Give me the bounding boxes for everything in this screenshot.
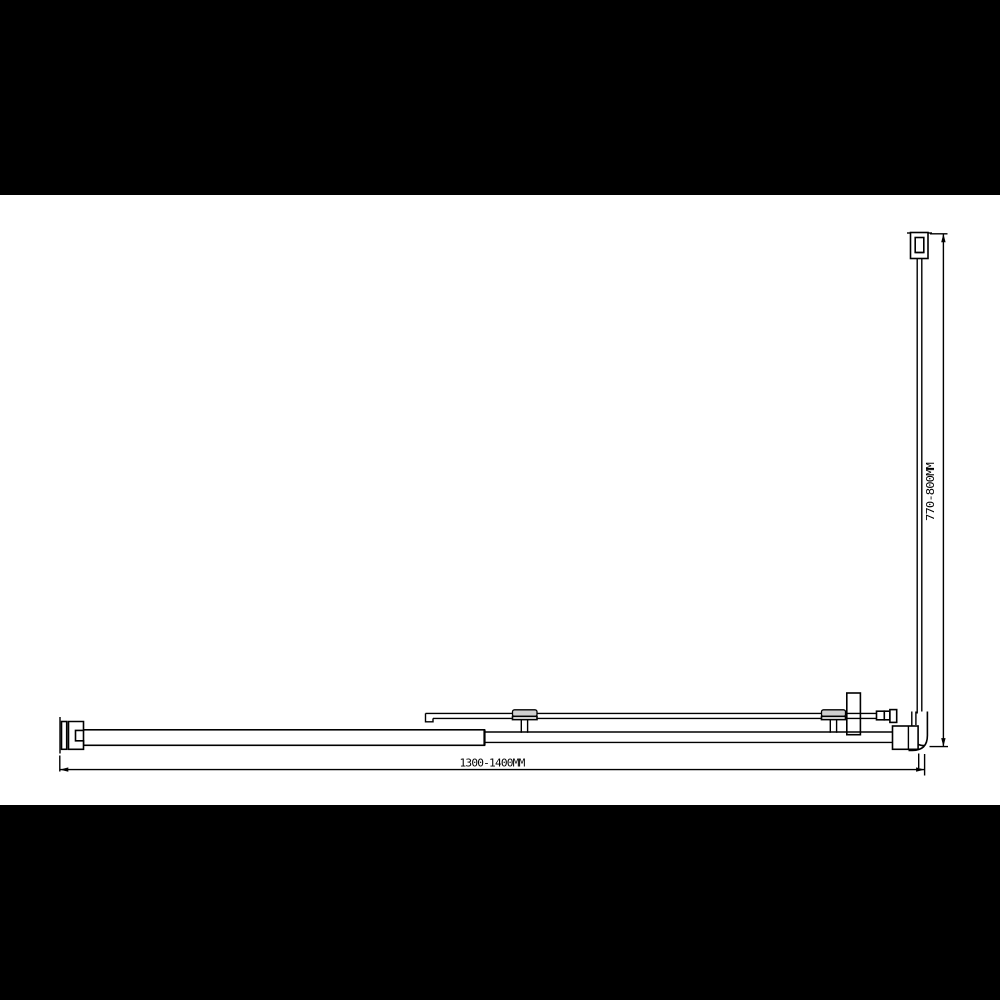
- screenshot-stage: 1300-1400MM 770-800MM: [0, 0, 1000, 1000]
- letterbox-bottom: [0, 805, 1000, 1000]
- letterbox-top: [0, 0, 1000, 195]
- rail-wall-bracket: [877, 710, 897, 723]
- technical-drawing: 1300-1400MM 770-800MM: [0, 0, 1000, 1000]
- width-dimension-label: 1300-1400MM: [460, 757, 526, 770]
- wall-profile-top: [907, 233, 932, 259]
- height-dimension-label: 770-800MM: [924, 462, 937, 521]
- fixed-panel: [84, 730, 485, 746]
